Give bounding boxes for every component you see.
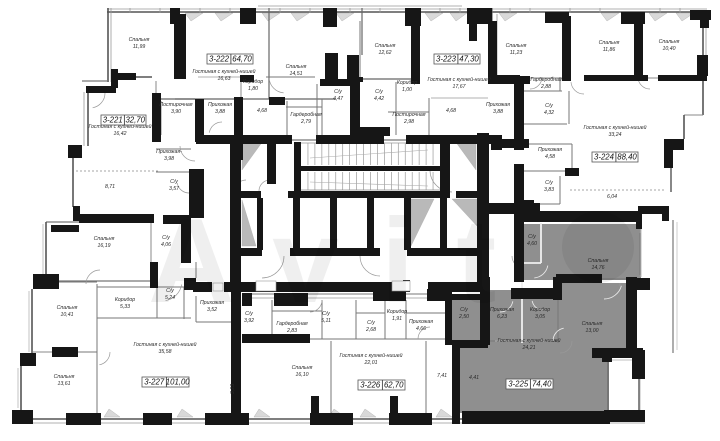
svg-text:Прихожая: Прихожая bbox=[486, 102, 510, 108]
svg-text:Спальня: Спальня bbox=[286, 64, 307, 70]
svg-text:Коридор: Коридор bbox=[115, 297, 135, 303]
svg-text:3-226: 3-226 bbox=[360, 381, 381, 390]
svg-text:2,79: 2,79 bbox=[300, 119, 311, 125]
svg-text:Спальня: Спальня bbox=[599, 40, 620, 46]
svg-text:47,30: 47,30 bbox=[459, 55, 479, 64]
svg-text:32,70: 32,70 bbox=[125, 116, 145, 125]
svg-text:3-223: 3-223 bbox=[436, 55, 457, 64]
svg-text:4,47: 4,47 bbox=[333, 96, 344, 102]
svg-text:12,62: 12,62 bbox=[379, 50, 392, 56]
svg-text:Спальня: Спальня bbox=[375, 43, 396, 49]
svg-text:Спальня: Спальня bbox=[57, 305, 78, 311]
svg-text:С/у: С/у bbox=[334, 89, 342, 95]
svg-text:4,32: 4,32 bbox=[544, 110, 554, 116]
svg-text:С/у: С/у bbox=[545, 180, 553, 186]
svg-text:Гостиная с кухней-нишей: Гостиная с кухней-нишей bbox=[339, 352, 402, 359]
svg-text:Гардеробная: Гардеробная bbox=[290, 112, 322, 118]
svg-text:5,33: 5,33 bbox=[120, 304, 130, 310]
svg-text:Гостиная с кухней-нишей: Гостиная с кухней-нишей bbox=[133, 341, 196, 348]
svg-text:3,88: 3,88 bbox=[493, 109, 503, 115]
svg-text:16,10: 16,10 bbox=[296, 372, 309, 378]
svg-text:64,70: 64,70 bbox=[232, 55, 252, 64]
svg-text:4,58: 4,58 bbox=[545, 154, 555, 160]
svg-text:Спальня: Спальня bbox=[659, 39, 680, 45]
svg-text:Спальня: Спальня bbox=[129, 37, 150, 43]
svg-text:35,58: 35,58 bbox=[159, 349, 172, 355]
svg-text:13,00: 13,00 bbox=[586, 328, 599, 334]
svg-text:С/у: С/у bbox=[545, 103, 553, 109]
svg-text:16,42: 16,42 bbox=[114, 131, 127, 137]
svg-text:1,00: 1,00 bbox=[402, 87, 412, 93]
svg-text:2,88: 2,88 bbox=[540, 84, 551, 90]
svg-text:8,71: 8,71 bbox=[105, 184, 115, 190]
svg-text:Спальня: Спальня bbox=[582, 321, 603, 327]
svg-text:7,41: 7,41 bbox=[437, 373, 447, 379]
svg-text:3-225: 3-225 bbox=[508, 380, 529, 389]
svg-text:Прихожая: Прихожая bbox=[208, 102, 232, 108]
svg-text:101,00: 101,00 bbox=[166, 378, 191, 387]
svg-text:3,98: 3,98 bbox=[164, 156, 174, 162]
svg-text:Avit: Avit bbox=[148, 194, 538, 328]
svg-text:3,90: 3,90 bbox=[171, 109, 181, 115]
svg-text:88,40: 88,40 bbox=[617, 153, 637, 162]
svg-text:Спальня: Спальня bbox=[94, 236, 115, 242]
svg-text:Прихожая: Прихожая bbox=[538, 147, 562, 153]
svg-text:74,40: 74,40 bbox=[532, 380, 552, 389]
svg-text:11,99: 11,99 bbox=[133, 44, 146, 50]
svg-text:Спальня: Спальня bbox=[292, 365, 313, 371]
svg-text:4,68: 4,68 bbox=[446, 108, 456, 114]
svg-text:6,04: 6,04 bbox=[607, 194, 617, 200]
svg-text:3-227: 3-227 bbox=[144, 378, 165, 387]
svg-text:16,19: 16,19 bbox=[98, 243, 111, 249]
svg-text:Коридор: Коридор bbox=[397, 80, 417, 86]
svg-text:Гостиная с кухней-нишей: Гостиная с кухней-нишей bbox=[427, 76, 490, 83]
svg-text:22,01: 22,01 bbox=[364, 360, 378, 366]
svg-text:4,68: 4,68 bbox=[257, 108, 267, 114]
svg-text:13,61: 13,61 bbox=[58, 381, 71, 387]
svg-text:16,63: 16,63 bbox=[218, 76, 231, 82]
svg-text:17,67: 17,67 bbox=[453, 84, 467, 90]
svg-text:3-224: 3-224 bbox=[594, 153, 615, 162]
svg-text:Гостиная с кухней-нишей: Гостиная с кухней-нишей bbox=[192, 68, 255, 75]
svg-text:Спальня: Спальня bbox=[54, 374, 75, 380]
svg-text:33,24: 33,24 bbox=[609, 132, 622, 138]
svg-text:24,21: 24,21 bbox=[522, 345, 536, 351]
svg-text:1,80: 1,80 bbox=[248, 86, 258, 92]
svg-text:Постирочная: Постирочная bbox=[392, 112, 425, 118]
svg-text:3-222: 3-222 bbox=[209, 55, 230, 64]
svg-text:3-221: 3-221 bbox=[103, 116, 123, 125]
svg-text:10,40: 10,40 bbox=[663, 46, 676, 52]
svg-text:2,83: 2,83 bbox=[286, 328, 297, 334]
svg-text:2,98: 2,98 bbox=[403, 119, 414, 125]
svg-text:11,86: 11,86 bbox=[603, 47, 616, 53]
svg-text:Гостиная с кухней-нишей: Гостиная с кухней-нишей bbox=[583, 124, 646, 131]
svg-text:14,51: 14,51 bbox=[290, 71, 303, 77]
svg-text:Гардеробная: Гардеробная bbox=[530, 77, 562, 83]
svg-text:Спальня: Спальня bbox=[506, 43, 527, 49]
svg-text:С/у: С/у bbox=[375, 89, 383, 95]
svg-text:3,23: 3,23 bbox=[230, 384, 236, 394]
svg-text:С/у: С/у bbox=[170, 179, 178, 185]
svg-text:3,83: 3,83 bbox=[544, 187, 554, 193]
svg-text:Гостиная с кухней-нишей: Гостиная с кухней-нишей bbox=[497, 337, 560, 344]
svg-text:11,23: 11,23 bbox=[510, 50, 523, 56]
svg-text:4,41: 4,41 bbox=[469, 375, 479, 381]
svg-text:Прихожая-: Прихожая- bbox=[156, 149, 182, 155]
svg-text:4,42: 4,42 bbox=[374, 96, 384, 102]
svg-text:62,70: 62,70 bbox=[384, 381, 404, 390]
svg-text:3,88: 3,88 bbox=[215, 109, 225, 115]
svg-text:Постирочная: Постирочная bbox=[159, 102, 192, 108]
svg-text:Коридор: Коридор bbox=[243, 79, 263, 85]
svg-text:10,41: 10,41 bbox=[61, 312, 74, 318]
svg-text:3,57: 3,57 bbox=[169, 186, 180, 192]
